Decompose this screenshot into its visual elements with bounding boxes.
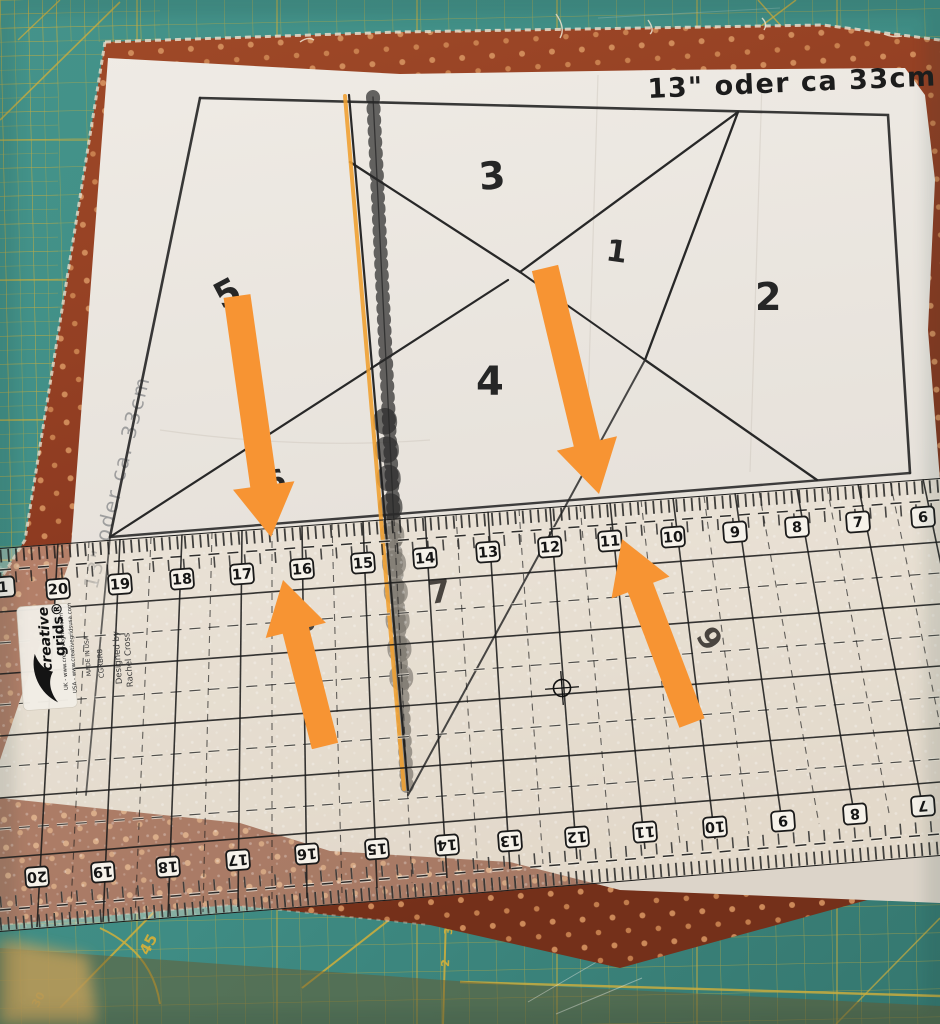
ruler-number: 12 (566, 827, 587, 844)
ruler-number: 7 (852, 515, 863, 532)
ruler-number: 15 (366, 839, 387, 856)
ruler-number: 10 (662, 529, 683, 546)
ruler-number: 17 (231, 566, 252, 583)
ruler-number: 12 (539, 539, 560, 556)
quilting-photo: 45 30 3 2 (0, 0, 940, 1024)
ruler-number: 13 (499, 831, 520, 848)
ruler-number: 11 (634, 822, 655, 839)
ruler-number: 15 (352, 555, 373, 572)
ruler-number: 10 (704, 817, 725, 834)
ruler-number: 20 (47, 581, 68, 598)
ruler-number: 8 (791, 520, 802, 537)
ruler-number: 14 (414, 550, 435, 567)
ruler-number: 16 (296, 844, 317, 861)
ruler-number: 19 (109, 576, 130, 593)
ruler-number: 17 (227, 850, 248, 867)
ruler-number: 19 (92, 862, 113, 879)
ruler-number: 11 (599, 533, 620, 550)
ruler-number: 8 (849, 805, 860, 822)
ruler-number: 9 (777, 812, 788, 829)
photo-canvas: 45 30 3 2 (0, 0, 940, 1024)
mat-scale-2-label: 2 (439, 959, 452, 967)
piece-label-2: 2 (755, 275, 781, 319)
piece-label-4: 4 (476, 359, 504, 405)
ruler-number: 16 (291, 561, 312, 578)
ruler-number: 20 (26, 867, 47, 884)
ruler-number: 9 (729, 525, 740, 542)
ruler-number: 18 (171, 571, 192, 588)
piece-label-3: 3 (477, 153, 507, 199)
ruler-number: 13 (477, 544, 498, 561)
ruler-number: 18 (157, 857, 178, 874)
ruler-number: 14 (436, 835, 457, 852)
